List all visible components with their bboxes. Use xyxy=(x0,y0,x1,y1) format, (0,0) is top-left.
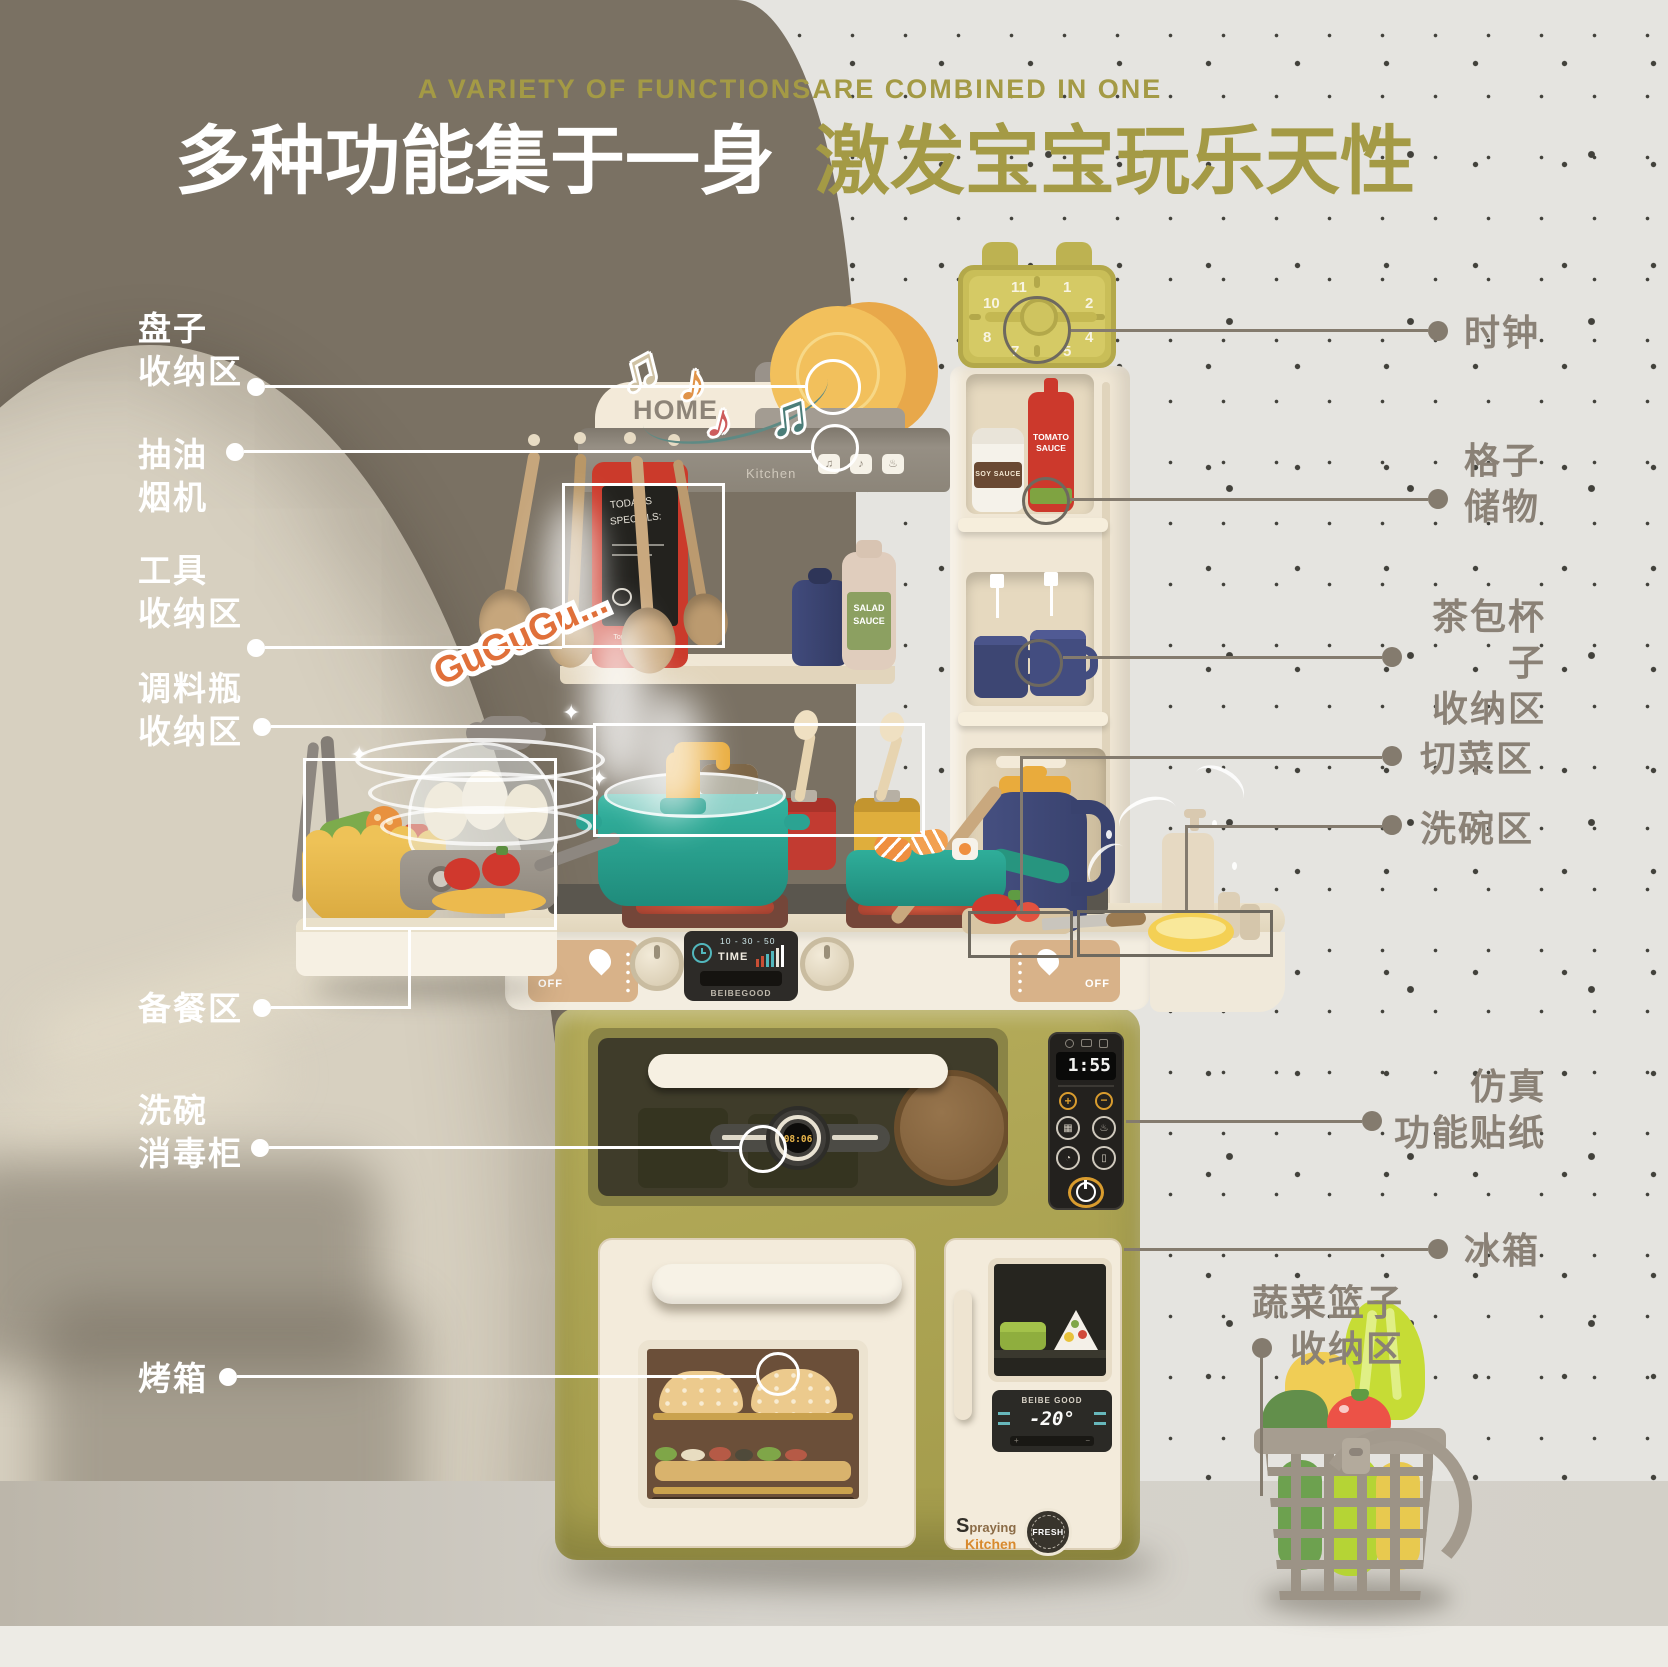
callout-text: 收纳区 xyxy=(1252,1326,1404,1372)
fridge-door: BEIBE GOOD -20° +− Spraying Kitchen FRES… xyxy=(944,1238,1122,1550)
knob-notch xyxy=(654,945,660,959)
bar xyxy=(776,948,779,967)
water-drop xyxy=(1106,830,1112,839)
sausage xyxy=(709,1447,731,1461)
shelf-shadow xyxy=(310,978,550,998)
fridge-display: BEIBE GOOD -20° +− xyxy=(992,1390,1112,1452)
annotation-rect xyxy=(1077,910,1273,957)
bento-box xyxy=(1000,1322,1046,1350)
fridge-temp: -20° xyxy=(1029,1408,1075,1430)
tomato-label-2: SAUCE xyxy=(1028,443,1074,454)
teabag-tag xyxy=(990,574,1004,588)
table-front-edge xyxy=(0,1626,1668,1667)
utensil-hook xyxy=(624,432,636,444)
steam-icon: ♨ xyxy=(888,458,898,470)
display-slot: +− xyxy=(1010,1436,1094,1446)
steam-mode-icon: ▦ xyxy=(1056,1116,1080,1140)
callout-plate-storage: 盘子 收纳区 xyxy=(138,308,243,394)
heat-mode-icon: ♨ xyxy=(1092,1116,1116,1140)
pot-icon xyxy=(1081,1039,1092,1047)
cheese xyxy=(681,1449,705,1461)
fridge-shelf xyxy=(994,1350,1106,1358)
tomato-sauce-label: TOMATO SAUCE xyxy=(1028,432,1074,454)
callout-dot xyxy=(1428,321,1448,341)
badge-ring xyxy=(1031,1515,1065,1549)
leader-line-vertical xyxy=(1020,756,1023,911)
callout-text: 收纳区 xyxy=(138,593,243,636)
display-dash xyxy=(1094,1422,1106,1425)
grinder-cap xyxy=(808,568,832,584)
plus-button-icon: + xyxy=(1059,1092,1077,1110)
sushi-roll xyxy=(952,838,978,860)
annotation-rect xyxy=(562,483,725,648)
fridge-handle xyxy=(954,1290,972,1420)
minus-mark: − xyxy=(1085,1436,1090,1446)
callout-dot xyxy=(253,999,271,1017)
panel-status-icons xyxy=(1065,1039,1108,1048)
pizza-toppings xyxy=(655,1445,851,1461)
leader-line xyxy=(1185,825,1382,828)
display-dash xyxy=(1094,1412,1106,1415)
pizza-base xyxy=(655,1461,851,1481)
callout-text: 仿真 xyxy=(1390,1064,1546,1110)
bar xyxy=(766,954,769,967)
oven-tray xyxy=(651,1497,855,1508)
bottle-nozzle xyxy=(1044,378,1058,394)
stove-knob xyxy=(800,937,854,991)
clock-number: 8 xyxy=(983,330,991,345)
salad-label-2: SAUCE xyxy=(847,615,891,628)
callout-tool-storage: 工具 收纳区 xyxy=(138,550,243,636)
clock-number: 10 xyxy=(983,296,1000,311)
callout-cutting-area: 切菜区 xyxy=(1420,736,1534,782)
callout-dot xyxy=(1428,1239,1448,1259)
bar xyxy=(771,951,774,967)
soy-sauce-jar: SOY SAUCE xyxy=(972,428,1024,512)
callout-text: 调料瓶 xyxy=(138,668,243,711)
broccoli xyxy=(655,1447,677,1461)
function-sticker-panel: 1:55 + − ▦ ♨ ◔ ▯ xyxy=(1048,1032,1124,1210)
callout-dot xyxy=(226,443,244,461)
callout-sanitizer: 洗碗 消毒柜 xyxy=(138,1090,243,1176)
leader-line xyxy=(1070,498,1428,501)
hood-brand-text: Kitchen xyxy=(746,466,796,481)
oven-handle xyxy=(652,1264,902,1304)
leader-line xyxy=(244,450,811,453)
highlight xyxy=(1339,1405,1349,1413)
water-drop xyxy=(1232,862,1237,870)
callout-text: 功能贴纸 xyxy=(1390,1110,1546,1156)
page-title-accent: 激发宝宝玩乐天性 xyxy=(815,100,1415,209)
mug-rim xyxy=(974,636,1028,645)
handle-mount xyxy=(1342,1438,1370,1474)
sparkle-icon: ✦ xyxy=(562,700,580,726)
clock-icon-hand xyxy=(701,952,706,954)
callout-text: 烤箱 xyxy=(138,1358,208,1401)
oven-rack xyxy=(653,1413,853,1420)
spraying-kitchen-logo: Spraying Kitchen xyxy=(956,1516,1016,1552)
callout-dot xyxy=(1428,489,1448,509)
tower-shelf xyxy=(958,712,1108,726)
clock-number: 1 xyxy=(1063,280,1071,295)
callout-text: 时钟 xyxy=(1464,310,1540,356)
callout-clock: 时钟 xyxy=(1464,310,1540,356)
callout-dot xyxy=(253,718,271,736)
callout-text: 备餐区 xyxy=(138,988,243,1031)
bar xyxy=(781,945,784,967)
callout-range-hood: 抽油 烟机 xyxy=(138,434,208,520)
soy-sauce-label: SOY SAUCE xyxy=(974,462,1022,488)
off-label: OFF xyxy=(1085,978,1110,990)
oven-door xyxy=(598,1238,916,1548)
tomato-leaf xyxy=(1351,1389,1369,1401)
panel-time: 1:55 xyxy=(1068,1055,1111,1076)
icon-glyph: ▯ xyxy=(1101,1153,1107,1164)
callout-dot xyxy=(247,639,265,657)
leader-line xyxy=(1126,1120,1362,1123)
callout-fridge: 冰箱 xyxy=(1464,1228,1540,1274)
leader-line xyxy=(1124,1248,1428,1251)
icon-glyph: ▦ xyxy=(1063,1123,1072,1134)
utensil-hook xyxy=(574,432,586,444)
plus-mark: + xyxy=(1014,1436,1019,1446)
sushi-filling xyxy=(1064,1332,1074,1342)
leader-line xyxy=(271,1006,411,1009)
callout-sticker: 仿真 功能贴纸 xyxy=(1390,1064,1546,1156)
callout-oven: 烤箱 xyxy=(138,1358,208,1401)
callout-text: 茶包杯子 xyxy=(1400,594,1546,686)
callout-dot xyxy=(1382,815,1402,835)
bento-lid xyxy=(1000,1322,1046,1332)
clock-tick xyxy=(1034,276,1040,288)
callout-text: 洗碗 xyxy=(138,1090,243,1133)
annotation-rect xyxy=(593,723,925,837)
annotation-circle xyxy=(1015,639,1063,687)
jar-lid xyxy=(972,428,1024,444)
stove-knob xyxy=(630,937,684,991)
callout-dot xyxy=(1382,647,1402,667)
clock-number: 4 xyxy=(1085,330,1093,345)
callout-veg-basket: 蔬菜篮子 收纳区 xyxy=(1252,1280,1404,1372)
logo-s: S xyxy=(956,1515,969,1537)
display-slot xyxy=(700,971,782,986)
panel-display: 1:55 xyxy=(1056,1052,1116,1080)
annotation-circle xyxy=(739,1125,787,1173)
music-note-icon: ♪ xyxy=(858,458,864,470)
callout-dot xyxy=(247,378,265,396)
mode-button-row: ▦ ♨ xyxy=(1056,1116,1116,1140)
fridge-brand: BEIBE GOOD xyxy=(992,1396,1112,1405)
salad-sauce-bottle: SALAD SAUCE xyxy=(842,552,896,670)
leader-line-vertical xyxy=(1185,825,1188,910)
callout-text: 蔬菜篮子 xyxy=(1252,1280,1404,1326)
mode-button-row: ◔ ▯ xyxy=(1056,1146,1116,1170)
page-title-main: 多种功能集于一身 xyxy=(175,100,775,209)
annotation-circle xyxy=(1022,477,1070,525)
plus-minus-row: + − xyxy=(1059,1092,1113,1110)
sausage xyxy=(785,1449,807,1461)
callout-grid-storage: 格子 储物 xyxy=(1464,438,1540,530)
broccoli xyxy=(757,1447,781,1461)
wing-dash xyxy=(832,1135,878,1140)
callout-text: 格子 xyxy=(1464,438,1540,484)
power-bar xyxy=(1084,1180,1087,1189)
fridge-window xyxy=(988,1258,1112,1382)
callout-text: 收纳区 xyxy=(1400,686,1546,732)
sushi-filling xyxy=(1078,1330,1087,1339)
callout-dot xyxy=(1362,1111,1382,1131)
callout-text: 烟机 xyxy=(138,477,208,520)
oven-window xyxy=(638,1340,868,1508)
callout-text: 收纳区 xyxy=(138,351,243,394)
pump-spout xyxy=(1184,809,1206,818)
annotation-rect xyxy=(968,911,1073,958)
power-button xyxy=(1068,1177,1104,1208)
leader-line-vertical xyxy=(408,930,411,1009)
bar xyxy=(756,959,759,967)
callout-text: 冰箱 xyxy=(1464,1228,1540,1274)
olive xyxy=(735,1449,753,1461)
sanitizer-window: 08:06 xyxy=(598,1038,998,1196)
display-dash xyxy=(998,1422,1010,1425)
time-label: TIME xyxy=(718,951,748,963)
annotation-rect xyxy=(303,758,557,930)
annotation-circle xyxy=(1003,296,1071,364)
mount-slot xyxy=(1349,1448,1363,1456)
display-dash xyxy=(998,1412,1010,1415)
fan-icon xyxy=(1099,1039,1108,1048)
mug-handle xyxy=(1078,646,1098,680)
salad-sauce-label: SALAD SAUCE xyxy=(847,592,891,650)
callout-text: 洗碗区 xyxy=(1420,806,1534,852)
minus-button-icon: − xyxy=(1095,1092,1113,1110)
flame-icon xyxy=(584,944,615,975)
oven-rack xyxy=(653,1487,853,1494)
leader-line xyxy=(1063,656,1382,659)
callout-dot xyxy=(251,1139,269,1157)
panel-divider xyxy=(1058,1085,1114,1087)
logo-kitchen: Kitchen xyxy=(965,1537,1016,1552)
tomato-label-1: TOMATO xyxy=(1028,432,1074,443)
callout-text: 抽油 xyxy=(138,434,208,477)
knob-notch xyxy=(824,945,830,959)
callout-dot xyxy=(1382,746,1402,766)
fresh-badge: FRESH xyxy=(1024,1508,1072,1556)
leader-line xyxy=(1020,756,1382,759)
kettle-knob xyxy=(1021,766,1047,778)
callout-seasoning-storage: 调料瓶 收纳区 xyxy=(138,668,243,754)
pepper-grinder xyxy=(792,580,848,666)
leader-line xyxy=(269,1146,739,1149)
timer-icon xyxy=(1065,1039,1074,1048)
knob-scale-dots xyxy=(626,950,630,994)
callout-washing-area: 洗碗区 xyxy=(1420,806,1534,852)
bottle-cap xyxy=(856,540,882,558)
mug-rim xyxy=(1030,630,1086,639)
sanitizer-window-frame: 08:06 xyxy=(588,1028,1008,1206)
callout-prep-area: 备餐区 xyxy=(138,988,243,1031)
leader-line-vertical xyxy=(1260,1356,1263,1496)
store-mode-icon: ▯ xyxy=(1092,1146,1116,1170)
sushi-filling xyxy=(1071,1320,1079,1328)
ladle-handle xyxy=(503,451,541,601)
clock-tick xyxy=(969,314,981,320)
callout-cup-storage: 茶包杯子 收纳区 xyxy=(1400,594,1546,732)
defrost-mode-icon: ◔ xyxy=(1056,1146,1080,1170)
poster: A VARIETY OF FUNCTIONSARE COMBINED IN ON… xyxy=(0,0,1668,1667)
clock-number: 11 xyxy=(1011,280,1027,295)
icon-glyph: ♨ xyxy=(1100,1123,1109,1134)
sanitizer-handle xyxy=(648,1054,948,1088)
callout-dot xyxy=(219,1368,237,1386)
callout-text: 工具 xyxy=(138,550,243,593)
clock-number: 2 xyxy=(1085,296,1093,311)
leader-line xyxy=(1071,329,1428,332)
stove-brand: BEIBEGOOD xyxy=(684,988,798,998)
icon-glyph: ◔ xyxy=(1065,1153,1071,1164)
sushi-triangle xyxy=(1054,1310,1098,1350)
cup-compartment xyxy=(966,572,1094,706)
annotation-circle xyxy=(805,359,861,415)
leader-line xyxy=(265,385,805,388)
knob-display: 08:06 xyxy=(783,1123,813,1153)
leader-line xyxy=(237,1375,756,1378)
leader-line xyxy=(271,725,593,728)
callout-text: 储物 xyxy=(1464,484,1540,530)
teabag-tag xyxy=(1044,572,1058,586)
callout-text: 收纳区 xyxy=(138,711,243,754)
bar xyxy=(761,956,764,967)
stove-display: 10 - 30 - 50 TIME BEIBEGOOD xyxy=(684,931,798,1001)
leader-line xyxy=(265,646,562,649)
callout-text: 消毒柜 xyxy=(138,1133,243,1176)
annotation-circle xyxy=(811,424,859,472)
power-icon xyxy=(1076,1182,1096,1202)
callout-text: 切菜区 xyxy=(1420,736,1534,782)
title-row: 多种功能集于一身 激发宝宝玩乐天性 xyxy=(0,100,1590,209)
timer-bars xyxy=(756,945,794,967)
sanitizer-time: 08:06 xyxy=(784,1134,813,1145)
logo-praying: praying xyxy=(969,1520,1016,1535)
sushi-center xyxy=(959,843,971,855)
timer-clock-icon xyxy=(692,943,712,963)
salad-label-1: SALAD xyxy=(847,602,891,615)
hood-fan-button: ♨ xyxy=(882,454,904,474)
annotation-circle xyxy=(756,1352,800,1396)
callout-text: 盘子 xyxy=(138,308,243,351)
